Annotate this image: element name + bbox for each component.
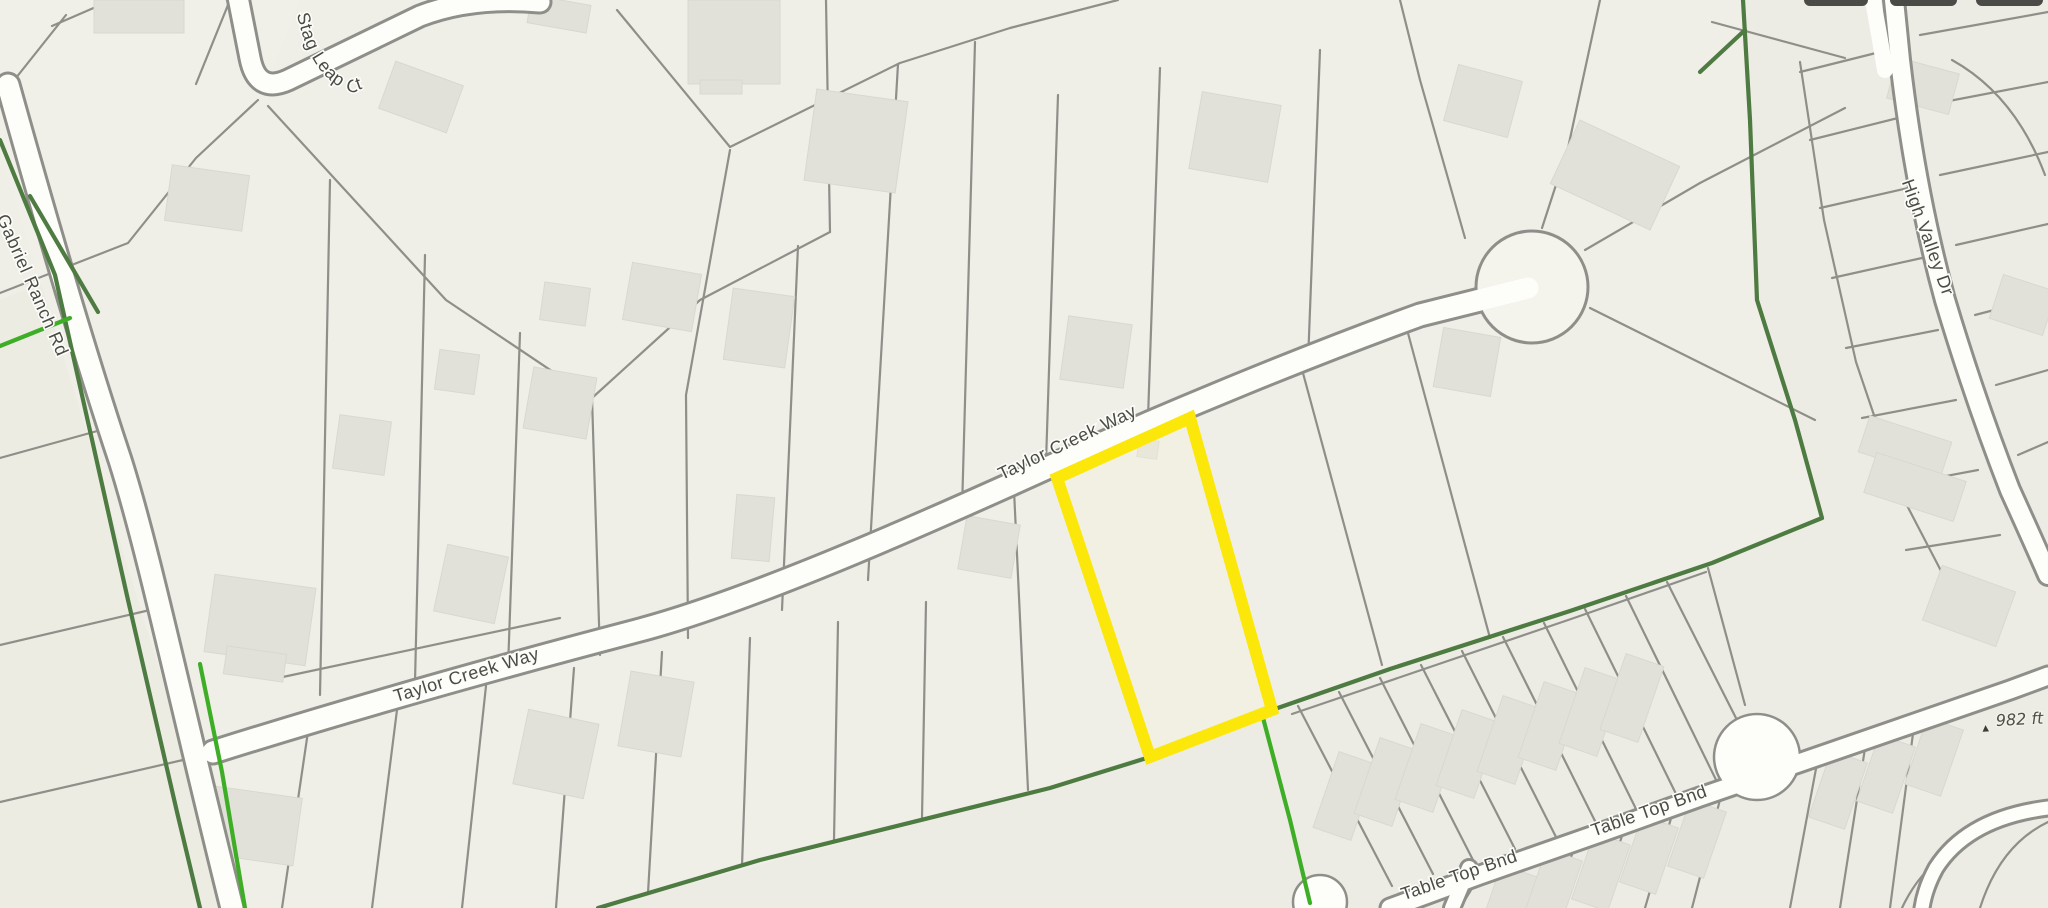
elevation-triangle-icon: ▲ bbox=[1980, 722, 1992, 735]
top-toolbar-tabs bbox=[1804, 0, 2043, 6]
toolbar-tab-3[interactable] bbox=[1976, 0, 2043, 6]
map-viewport[interactable]: Stag Leap Ct Gabriel Ranch Rd Taylor Cre… bbox=[0, 0, 2048, 908]
toolbar-tab-1[interactable] bbox=[1804, 0, 1868, 6]
elevation-label: 982 ft bbox=[1995, 708, 2044, 729]
map-canvas[interactable]: Stag Leap Ct Gabriel Ranch Rd Taylor Cre… bbox=[0, 0, 2048, 908]
toolbar-tab-2[interactable] bbox=[1890, 0, 1957, 6]
